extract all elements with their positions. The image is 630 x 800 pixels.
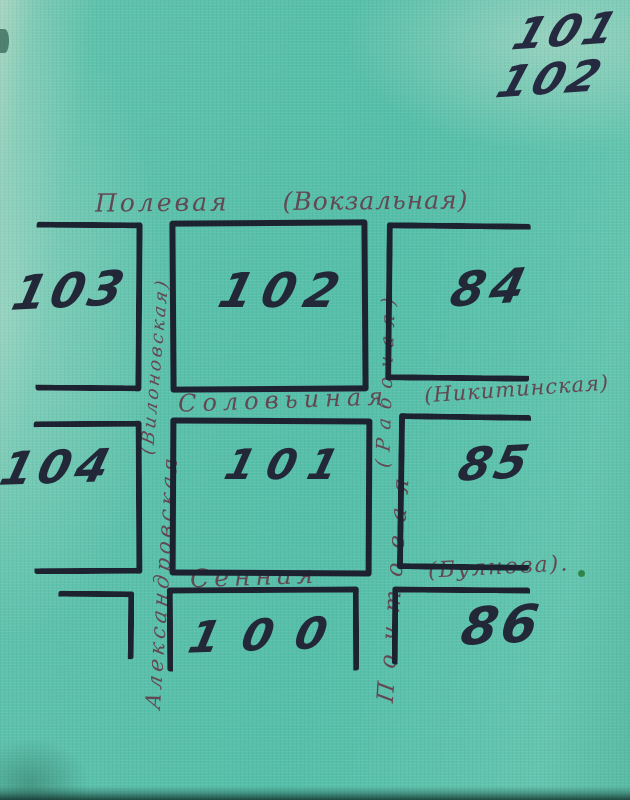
- green-ink-dot: [578, 570, 585, 577]
- street-label-polevaya: Полевая (Вокзальная): [95, 185, 469, 217]
- street-name: Полевая: [95, 187, 230, 217]
- page-number-bottom: 102: [490, 51, 610, 109]
- street-former-vilonovskaya: (Вилоновская): [137, 276, 173, 457]
- street-former-name: (Вокзальная): [282, 185, 468, 216]
- city-block-outline-partial-left: [58, 591, 135, 660]
- block-number-102: 102: [213, 263, 354, 319]
- block-number-104: 104: [0, 438, 120, 496]
- block-number-85: 85: [453, 434, 537, 492]
- block-number-100: 100: [184, 607, 354, 663]
- paper-shadow: [0, 738, 90, 800]
- scanned-map-page: 101 102 Полевая (Вокзальная) Соловьиная …: [0, 0, 630, 800]
- paper-blemish: [0, 29, 9, 53]
- block-number-84: 84: [445, 257, 535, 318]
- block-number-101: 101: [220, 440, 356, 489]
- block-number-86: 86: [457, 594, 546, 658]
- block-number-103: 103: [7, 260, 134, 322]
